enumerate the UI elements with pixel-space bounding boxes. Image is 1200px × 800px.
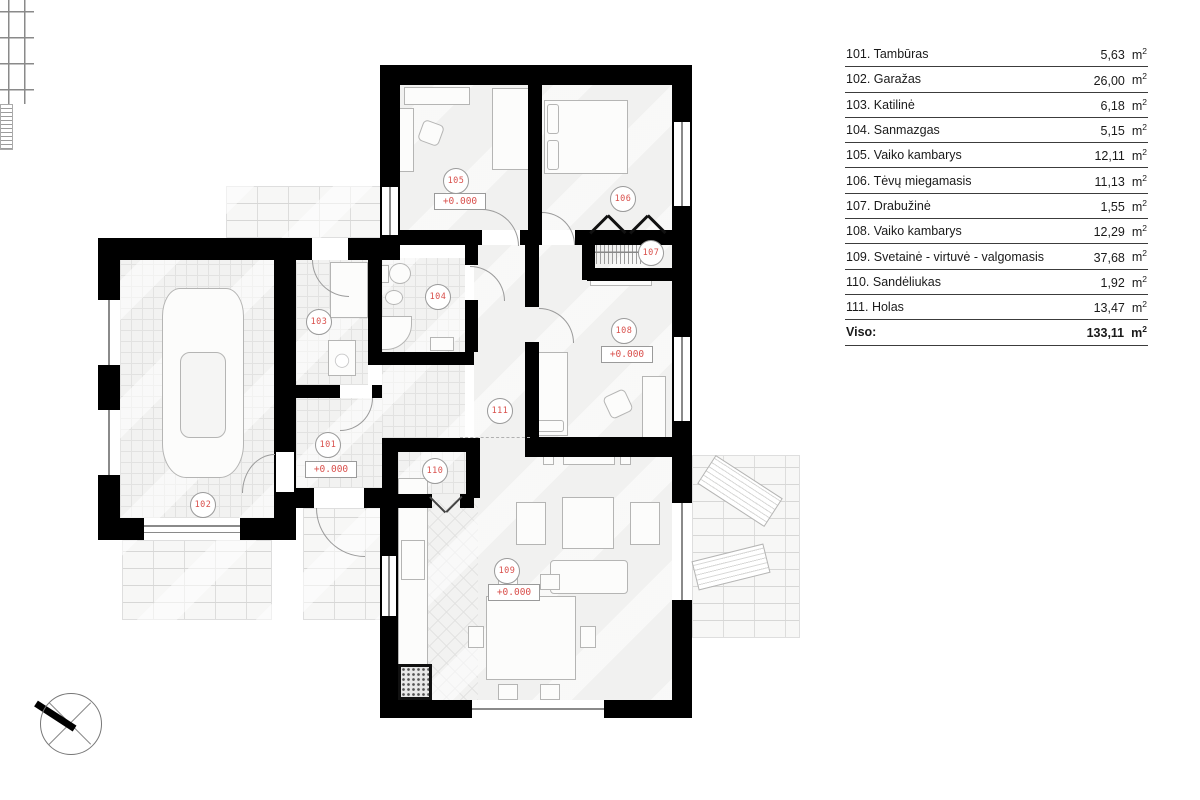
elevation-label: +0.000: [601, 346, 653, 363]
window: [382, 187, 398, 235]
legend-row-area: 1,92m2: [1081, 274, 1147, 290]
bicycle: [0, 78, 34, 104]
shoe-niche: [0, 104, 13, 150]
room-label-110: 110: [422, 458, 448, 484]
bicycle: [0, 0, 34, 26]
bed: [492, 88, 530, 170]
kitchen-sink: [401, 540, 425, 580]
wall: [528, 85, 542, 230]
pillow: [547, 104, 559, 134]
legend-row-label: 111. Holas: [846, 300, 904, 314]
room-label-105: 105: [443, 168, 469, 194]
legend-row-area: 12,11m2: [1081, 147, 1147, 163]
elevation-label: +0.000: [488, 584, 540, 601]
elevation-label: +0.000: [305, 461, 357, 478]
window: [382, 556, 396, 616]
wall: [98, 365, 120, 410]
bicycle: [0, 52, 34, 78]
legend-row-area: 12,29m2: [1081, 223, 1147, 239]
window: [472, 702, 604, 716]
legend-total-label: Viso:: [846, 325, 876, 339]
legend-row-area: 13,47m2: [1081, 299, 1147, 315]
door-opening: [312, 240, 348, 258]
wall: [525, 342, 539, 437]
legend-row-label: 110. Sandėliukas: [846, 275, 941, 289]
patio: [226, 186, 390, 238]
window: [100, 300, 118, 365]
wall: [672, 600, 692, 718]
window: [674, 503, 690, 600]
pillow: [547, 140, 559, 170]
legend-row: 105. Vaiko kambarys12,11m2: [845, 143, 1148, 168]
wall: [380, 700, 472, 718]
bicycle: [0, 26, 34, 52]
dining-chair: [498, 684, 518, 700]
legend-table: 101. Tambūras5,63m2102. Garažas26,00m210…: [845, 42, 1148, 346]
wall: [398, 438, 474, 452]
window: [100, 410, 118, 475]
wall: [368, 352, 474, 365]
room-label-109: 109: [494, 558, 520, 584]
room-label-101: 101: [315, 432, 341, 458]
legend-row-label: 109. Svetainė - virtuvė - valgomasis: [846, 250, 1044, 264]
legend-row: 110. Sandėliukas1,92m2: [845, 270, 1148, 295]
dining-chair: [468, 626, 484, 648]
wardrobe: [404, 87, 470, 105]
room-label-104: 104: [425, 284, 451, 310]
elevation-label: +0.000: [434, 193, 486, 210]
sofa: [550, 560, 628, 594]
floor-plan-page: 101+0.000102103104105+0.000106107108+0.0…: [0, 0, 1200, 800]
wall: [525, 245, 539, 307]
room-label-103: 103: [306, 309, 332, 335]
room-label-108: 108: [611, 318, 637, 344]
wall: [382, 494, 432, 508]
wall: [368, 260, 382, 352]
legend-row-area: 5,15m2: [1081, 122, 1147, 138]
legend-row-label: 103. Katilinė: [846, 98, 915, 112]
room-label-107: 107: [638, 240, 664, 266]
coffee-table: [562, 497, 614, 549]
legend-row: 111. Holas13,47m2: [845, 295, 1148, 320]
legend-row-area: 6,18m2: [1081, 97, 1147, 113]
legend-row-label: 104. Sanmazgas: [846, 123, 940, 137]
car-roof: [180, 352, 226, 438]
door-opening: [314, 490, 364, 506]
desk: [398, 108, 414, 172]
wall: [520, 230, 542, 245]
door-opening: [276, 452, 294, 492]
wall: [296, 385, 340, 398]
dining-chair: [540, 684, 560, 700]
legend-row: 106. Tėvų miegamasis11,13m2: [845, 168, 1148, 193]
washing-machine: [328, 340, 356, 376]
legend-row-label: 101. Tambūras: [846, 47, 928, 61]
legend-rows: 101. Tambūras5,63m2102. Garažas26,00m210…: [845, 42, 1148, 320]
legend-row-area: 1,55m2: [1081, 198, 1147, 214]
wall: [466, 438, 480, 498]
legend-row-area: 37,68m2: [1081, 248, 1147, 264]
legend-row: 109. Svetainė - virtuvė - valgomasis37,6…: [845, 244, 1148, 269]
legend-row-area: 26,00m2: [1081, 71, 1147, 87]
legend-row: 108. Vaiko kambarys12,29m2: [845, 219, 1148, 244]
legend-total-area: 133,11 m2: [1080, 324, 1147, 340]
legend-row: 102. Garažas26,00m2: [845, 67, 1148, 92]
room-label-111: 111: [487, 398, 513, 424]
dining-chair: [580, 626, 596, 648]
wall: [98, 518, 144, 540]
wall: [98, 238, 296, 260]
wall: [465, 245, 478, 265]
window: [674, 337, 690, 421]
wall: [296, 238, 312, 260]
wall: [672, 457, 692, 503]
dining-table: [486, 596, 576, 680]
garage-door: [144, 520, 240, 538]
wall: [348, 238, 400, 260]
legend-row-label: 108. Vaiko kambarys: [846, 224, 962, 238]
window: [674, 122, 690, 206]
legend-row: 101. Tambūras5,63m2: [845, 42, 1148, 67]
toilet: [389, 263, 411, 284]
wall: [380, 65, 692, 85]
north-arrow-compass: [40, 693, 102, 755]
armchair: [516, 502, 546, 545]
legend-row-label: 105. Vaiko kambarys: [846, 148, 962, 162]
wall: [525, 437, 692, 457]
legend-total-row: Viso: 133,11 m2: [845, 320, 1148, 345]
desk: [642, 376, 666, 438]
wall: [98, 260, 120, 300]
legend-row-area: 11,13m2: [1081, 173, 1147, 189]
driveway: [122, 540, 272, 620]
wc-tank: [381, 265, 389, 283]
legend-row: 107. Drabužinė1,55m2: [845, 194, 1148, 219]
fireplace: [398, 664, 432, 700]
wall: [587, 268, 692, 281]
legend-row-label: 107. Drabužinė: [846, 199, 931, 213]
room-label-106: 106: [610, 186, 636, 212]
legend-row: 104. Sanmazgas5,15m2: [845, 118, 1148, 143]
legend-row: 103. Katilinė6,18m2: [845, 93, 1148, 118]
bathroom-sink: [430, 337, 454, 351]
room-label-102: 102: [190, 492, 216, 518]
legend-row-label: 102. Garažas: [846, 72, 921, 86]
legend-row-label: 106. Tėvų miegamasis: [846, 174, 972, 188]
wall: [372, 385, 382, 398]
wall: [465, 300, 478, 352]
armchair: [630, 502, 660, 545]
dining-chair: [540, 574, 560, 590]
legend-row-area: 5,63m2: [1081, 46, 1147, 62]
bidet: [385, 290, 403, 305]
hall-boundary-dash: [460, 437, 530, 438]
wall: [364, 488, 382, 508]
